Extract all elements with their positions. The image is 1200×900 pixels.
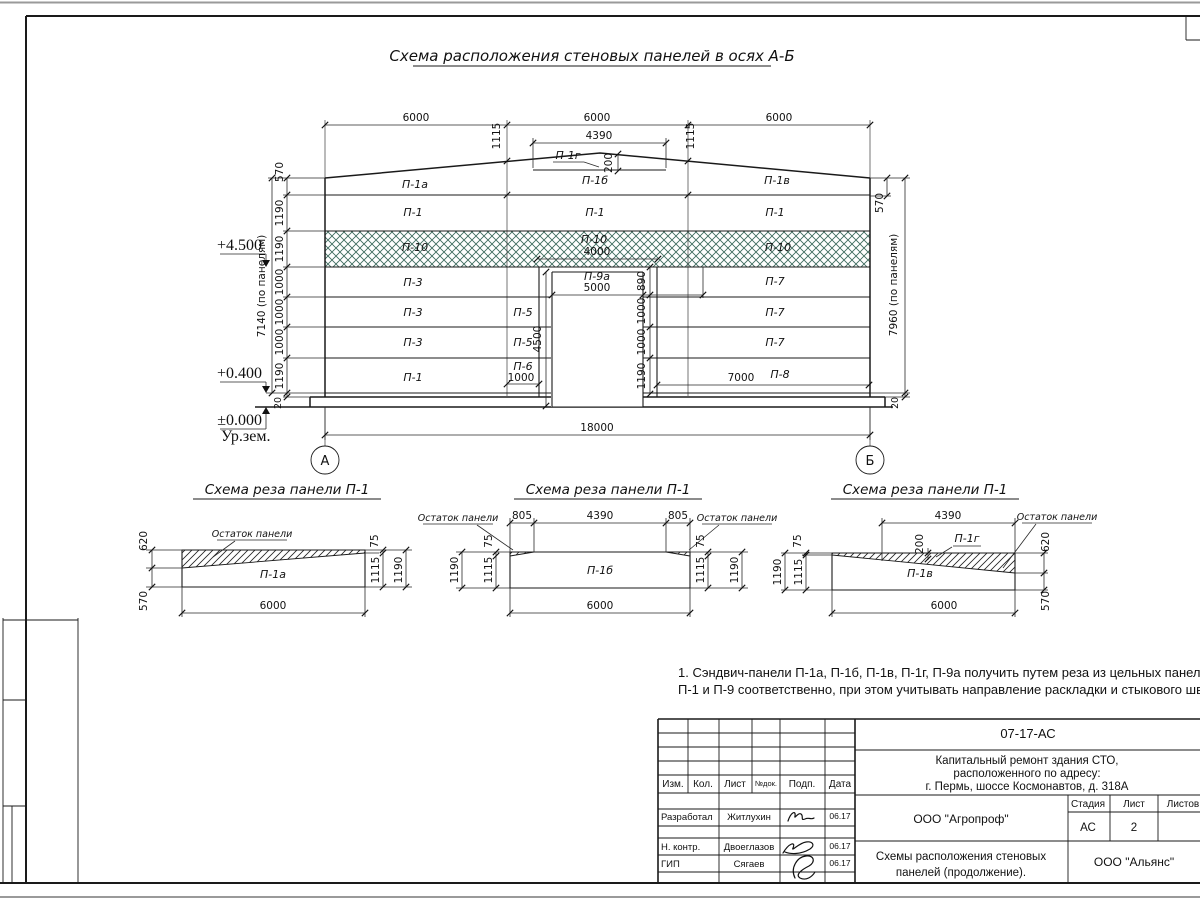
panel-p7b: П-7: [765, 306, 784, 319]
col-podp: Подп.: [789, 779, 816, 790]
panel-p1-r2a: П-1: [403, 206, 422, 219]
detail2-title: Схема реза панели П-1: [526, 482, 691, 498]
project-line-1: Капитальный ремонт здания СТО,: [935, 755, 1118, 767]
dim-bay1: 6000: [403, 112, 430, 124]
detail2-dim-1115r: 1115: [695, 557, 707, 584]
level-4500: +4.500: [217, 237, 262, 254]
level-0000: ±0.000: [217, 412, 262, 429]
detail3-dim-620: 620: [1040, 532, 1052, 552]
dim-1000-p6: 1000: [508, 372, 535, 384]
drawing-canvas: Схема расположения стеновых панелей в ос…: [0, 0, 1200, 900]
sheet-subject-2: панелей (продолжение).: [896, 867, 1026, 879]
dim-chain-570: 570: [274, 162, 286, 182]
detail2-remnant-left: Остаток панели: [418, 513, 499, 524]
panel-p1-bot: П-1: [403, 371, 422, 384]
dim-20-right: 20: [890, 397, 901, 409]
row2-name: Двоеглазов: [724, 842, 775, 853]
row3-date: 06.17: [829, 858, 851, 868]
margin-stamp-boxes: [3, 16, 1200, 883]
panel-p5a: П-5: [513, 306, 532, 319]
level-ground-label: Ур.зем.: [221, 428, 270, 445]
col-list: Лист: [724, 779, 746, 790]
detail3-dim-1190: 1190: [772, 559, 784, 586]
dim-chain-1000c: 1000: [274, 329, 286, 356]
note-line-2: П-1 и П-9 соответственно, при этом учиты…: [678, 682, 1200, 697]
detail1-remnant-label: Остаток панели: [212, 529, 293, 540]
row3-name: Сягаев: [734, 859, 765, 870]
detail3-piece-label: П-1г: [954, 532, 979, 545]
signature-row1: [788, 813, 814, 821]
detail2-dim-805r: 805: [668, 510, 688, 522]
dim-570-right: 570: [874, 193, 886, 213]
panel-p1-r2b: П-1: [585, 206, 604, 219]
detail3-remnant-label: Остаток панели: [1017, 512, 1098, 523]
detail3-dim-4390: 4390: [935, 510, 962, 522]
dim-7000: 7000: [728, 372, 755, 384]
drawing-sheet: Схема расположения стеновых панелей в ос…: [0, 0, 1200, 900]
doc-number: 07-17-АС: [1000, 726, 1055, 741]
dim-bay3: 6000: [766, 112, 793, 124]
sheet-header: Лист: [1123, 799, 1145, 810]
detail-2-cut-scheme: Схема реза панели П-1 Остаток панели Ост…: [418, 482, 778, 617]
sheet-number: 2: [1131, 822, 1137, 834]
panel-p1b: П-1б: [582, 174, 608, 187]
detail-3-cut-scheme: Схема реза панели П-1 4390 200 П-1г Оста…: [772, 482, 1097, 617]
row2-date: 06.17: [829, 841, 851, 851]
col-kol: Кол.: [693, 779, 713, 790]
panel-p3a: П-3: [403, 276, 422, 289]
org-designer: ООО "Агропроф": [913, 812, 1008, 826]
panel-p9a: П-9а: [584, 270, 610, 283]
dim-door-1000b: 1000: [636, 329, 648, 356]
panel-p7c: П-7: [765, 336, 784, 349]
project-line-3: г. Пермь, шоссе Космонавтов, д. 318А: [926, 781, 1129, 793]
signature-row3: [793, 856, 815, 879]
detail1-dim-1190: 1190: [393, 557, 405, 584]
dim-18000: 18000: [580, 422, 613, 434]
axis-label-b: Б: [866, 454, 875, 469]
detail2-dim-1115l: 1115: [483, 557, 495, 584]
dim-chain-1190a: 1190: [274, 200, 286, 227]
sheet-subject-1: Схемы расположения стеновых: [876, 851, 1046, 863]
row2-role: Н. контр.: [661, 842, 700, 853]
panel-p1v: П-1в: [764, 174, 790, 187]
detail1-title: Схема реза панели П-1: [205, 482, 370, 498]
detail3-dim-6000: 6000: [931, 600, 958, 612]
detail3-title: Схема реза панели П-1: [843, 482, 1008, 498]
panel-p5b: П-5: [513, 336, 532, 349]
dim-chain-20: 20: [273, 397, 284, 409]
detail3-dim-1115: 1115: [793, 559, 805, 586]
dim-4390: 4390: [586, 130, 613, 142]
row1-name: Житлухин: [727, 812, 771, 823]
panel-p7a: П-7: [765, 275, 784, 288]
panel-p8: П-8: [770, 368, 789, 381]
dim-door-890: 890: [636, 271, 648, 291]
detail1-dim-75: 75: [369, 534, 381, 547]
dim-chain-1190c: 1190: [274, 363, 286, 390]
col-izm: Изм.: [662, 779, 683, 790]
detail1-panel-label: П-1а: [260, 568, 286, 581]
panel-p6: П-6: [513, 360, 532, 373]
detail1-dim-1115: 1115: [370, 557, 382, 584]
detail2-dim-805l: 805: [512, 510, 532, 522]
stage-header: Стадия: [1071, 799, 1105, 810]
signature-row2: [783, 842, 813, 854]
dim-7960-total: 7960 (по панелям): [888, 234, 900, 336]
panel-p3b: П-3: [403, 306, 422, 319]
detail1-dim-620: 620: [138, 531, 150, 551]
detail2-remnant-right: Остаток панели: [697, 513, 778, 524]
title-block: 07-17-АС Капитальный ремонт здания СТО, …: [658, 719, 1200, 883]
sheets-header: Листов: [1167, 799, 1200, 810]
detail3-panel-label: П-1в: [907, 567, 933, 580]
dim-door-1190: 1190: [636, 363, 648, 390]
dim-chain-1000b: 1000: [274, 299, 286, 326]
dim-200-ridge: 200: [603, 153, 615, 173]
dim-5000: 5000: [584, 282, 611, 294]
detail2-dim-1190r: 1190: [729, 557, 741, 584]
row3-role: ГИП: [661, 859, 680, 870]
detail-1-cut-scheme: Схема реза панели П-1 Остаток панели П-1…: [138, 482, 412, 617]
dim-1115-left: 1115: [491, 123, 503, 150]
panel-p10c: П-10: [765, 241, 791, 254]
detail2-panel-label: П-1б: [587, 564, 613, 577]
detail2-dim-6000: 6000: [587, 600, 614, 612]
panel-p10b: П-10: [581, 233, 607, 246]
detail1-dim-570: 570: [138, 591, 150, 611]
dim-bay2: 6000: [584, 112, 611, 124]
dim-chain-1190b: 1190: [274, 236, 286, 263]
detail2-dim-4390: 4390: [587, 510, 614, 522]
note-line-1: 1. Сэндвич-панели П-1а, П-1б, П-1в, П-1г…: [678, 665, 1200, 680]
panel-p1g: П-1г: [555, 149, 580, 162]
panel-p10a: П-10: [402, 241, 428, 254]
detail2-dim-75l: 75: [483, 534, 495, 547]
dim-chain-1000a: 1000: [274, 269, 286, 296]
general-note: 1. Сэндвич-панели П-1а, П-1б, П-1в, П-1г…: [678, 665, 1200, 697]
org-client: ООО "Альянс": [1094, 855, 1174, 869]
detail3-dim-200: 200: [914, 534, 926, 554]
detail1-dim-6000: 6000: [260, 600, 287, 612]
level-0400: +0.400: [217, 365, 262, 382]
panel-p3c: П-3: [403, 336, 422, 349]
main-title: Схема расположения стеновых панелей в ос…: [389, 47, 794, 65]
project-line-2: расположенного по адресу:: [953, 768, 1100, 780]
detail3-dim-570: 570: [1040, 591, 1052, 611]
row1-date: 06.17: [829, 811, 851, 821]
panel-p1a: П-1а: [402, 178, 428, 191]
detail2-dim-75r: 75: [695, 534, 707, 547]
detail3-dim-75: 75: [792, 534, 804, 547]
row1-role: Разработал: [661, 812, 713, 823]
dim-door-1000a: 1000: [636, 298, 648, 325]
panel-p1-r2c: П-1: [765, 206, 784, 219]
axis-label-a: А: [321, 454, 330, 469]
stage-value: АС: [1080, 822, 1096, 834]
dim-4000: 4000: [584, 246, 611, 258]
col-ndok: №док.: [755, 779, 777, 788]
dim-door-4500: 4500: [532, 326, 544, 353]
detail2-dim-1190l: 1190: [449, 557, 461, 584]
elevation-drawing: А Б 6000 6000 6000 4390 18000 4000 5000 …: [217, 112, 910, 474]
col-data: Дата: [829, 779, 852, 790]
